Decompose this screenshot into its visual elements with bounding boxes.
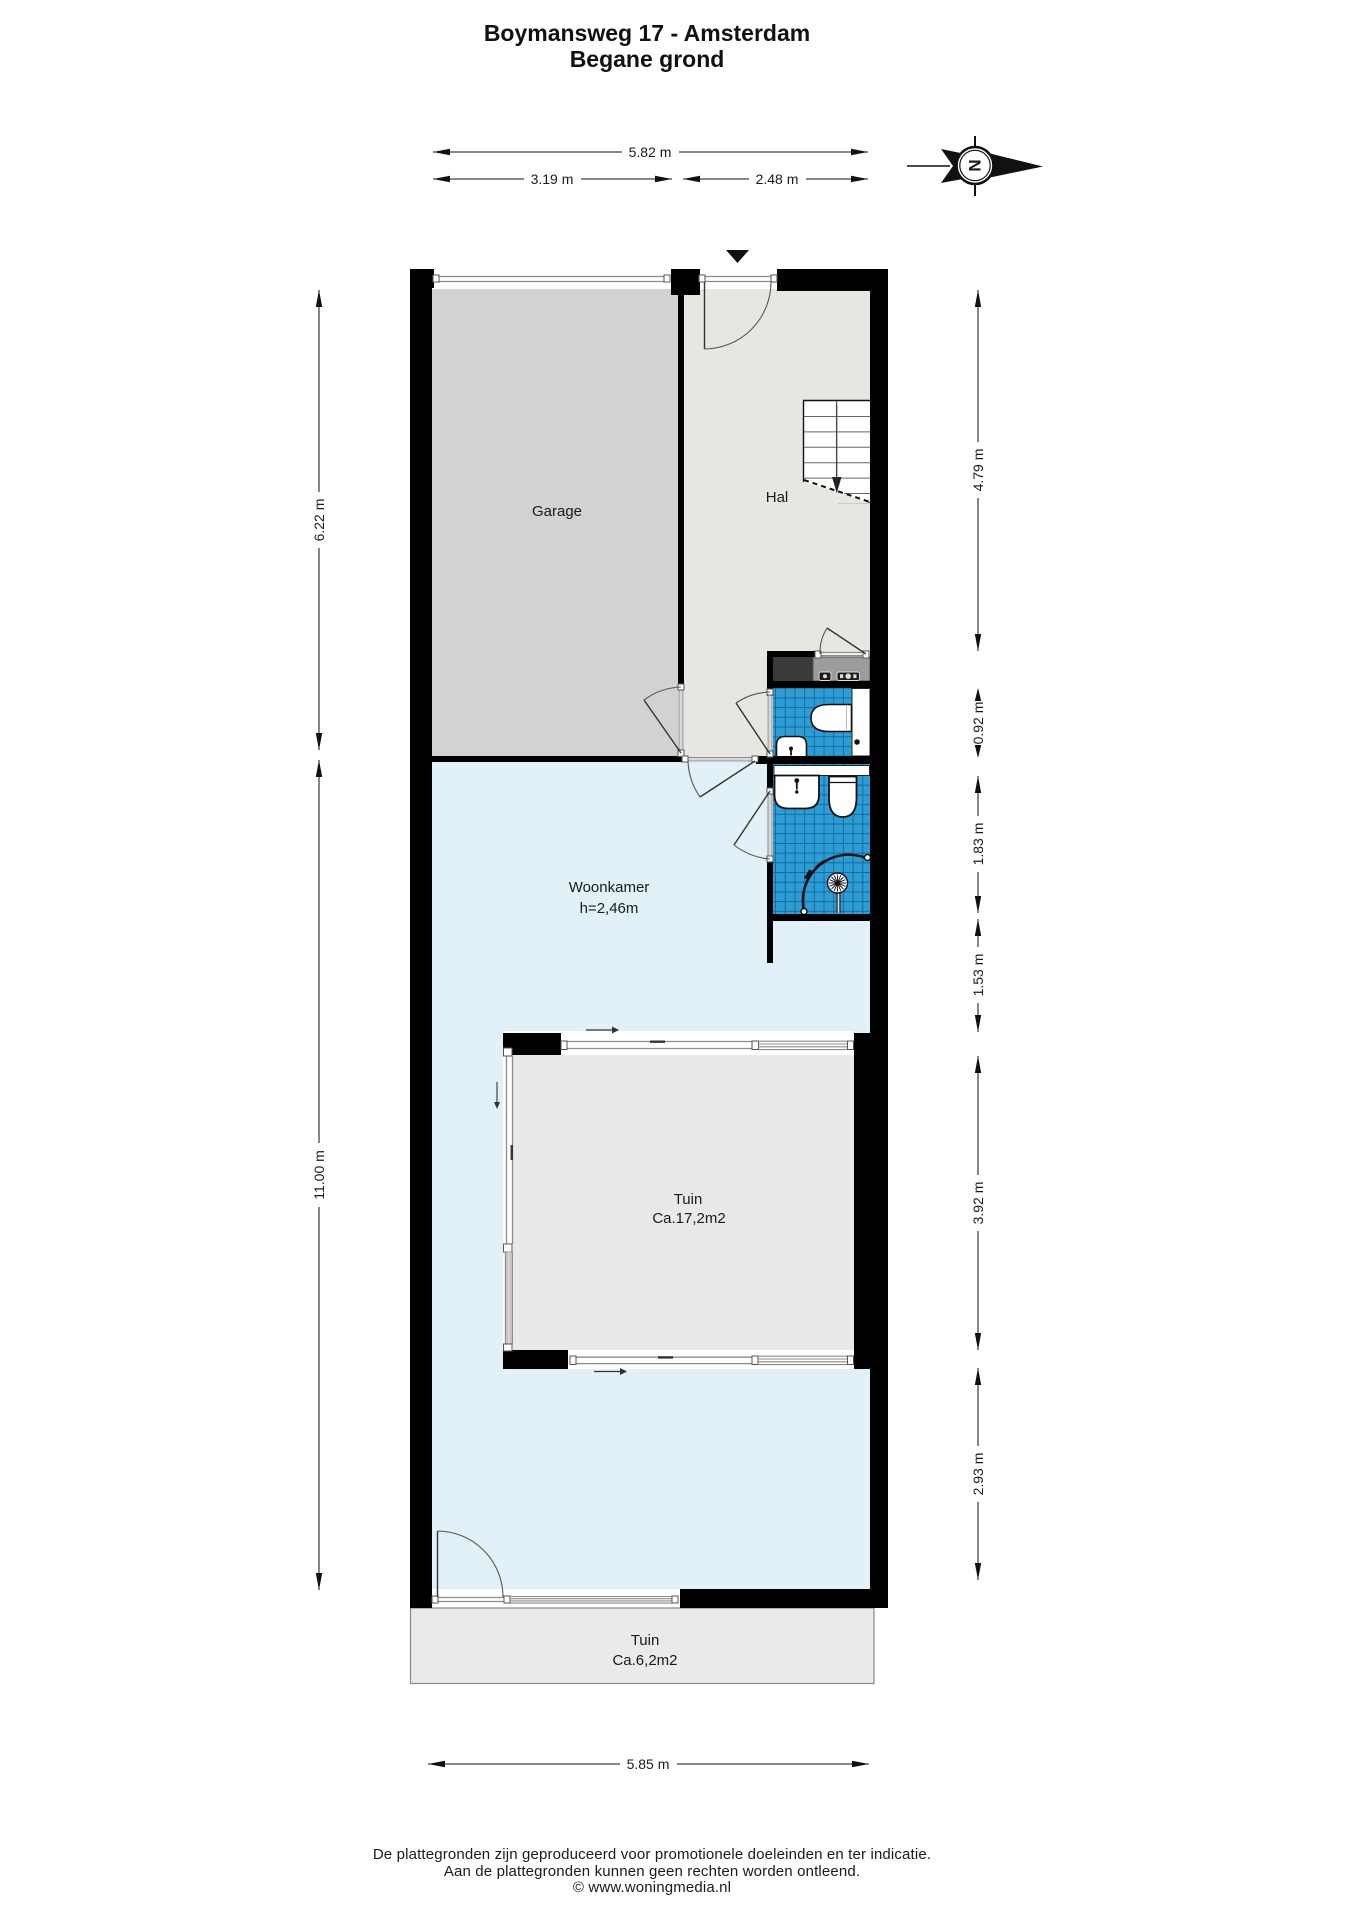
svg-text:Ca.17,2m2: Ca.17,2m2 [652, 1210, 725, 1227]
svg-text:Hal: Hal [766, 489, 789, 506]
svg-text:1.83 m: 1.83 m [970, 823, 986, 866]
svg-text:Garage: Garage [532, 503, 582, 520]
svg-text:3.19 m: 3.19 m [531, 171, 574, 187]
svg-text:Boymansweg 17 - Amsterdam: Boymansweg 17 - Amsterdam [484, 20, 810, 46]
svg-text:Woonkamer: Woonkamer [569, 879, 650, 896]
svg-text:© www.woningmedia.nl: © www.woningmedia.nl [573, 1879, 731, 1896]
svg-text:4.79 m: 4.79 m [970, 449, 986, 492]
svg-text:Begane grond: Begane grond [570, 46, 725, 72]
svg-text:Tuin: Tuin [674, 1191, 703, 1208]
svg-text:5.85 m: 5.85 m [627, 1756, 670, 1772]
svg-text:2.48 m: 2.48 m [756, 171, 799, 187]
svg-text:2.93 m: 2.93 m [970, 1453, 986, 1496]
svg-text:h=2,46m: h=2,46m [580, 900, 639, 917]
svg-text:Aan de plattegronden kunnen ge: Aan de plattegronden kunnen geen rechten… [444, 1863, 860, 1880]
svg-text:5.82 m: 5.82 m [629, 144, 672, 160]
svg-text:6.22 m: 6.22 m [311, 499, 327, 542]
svg-text:0.92 m: 0.92 m [970, 702, 986, 745]
svg-text:N: N [965, 159, 984, 171]
svg-text:11.00 m: 11.00 m [311, 1150, 327, 1200]
svg-text:1.53 m: 1.53 m [970, 954, 986, 997]
svg-text:Ca.6,2m2: Ca.6,2m2 [612, 1652, 677, 1669]
svg-text:Tuin: Tuin [631, 1632, 660, 1649]
svg-text:De plattegronden zijn geproduc: De plattegronden zijn geproduceerd voor … [373, 1846, 931, 1863]
svg-text:3.92 m: 3.92 m [970, 1182, 986, 1225]
